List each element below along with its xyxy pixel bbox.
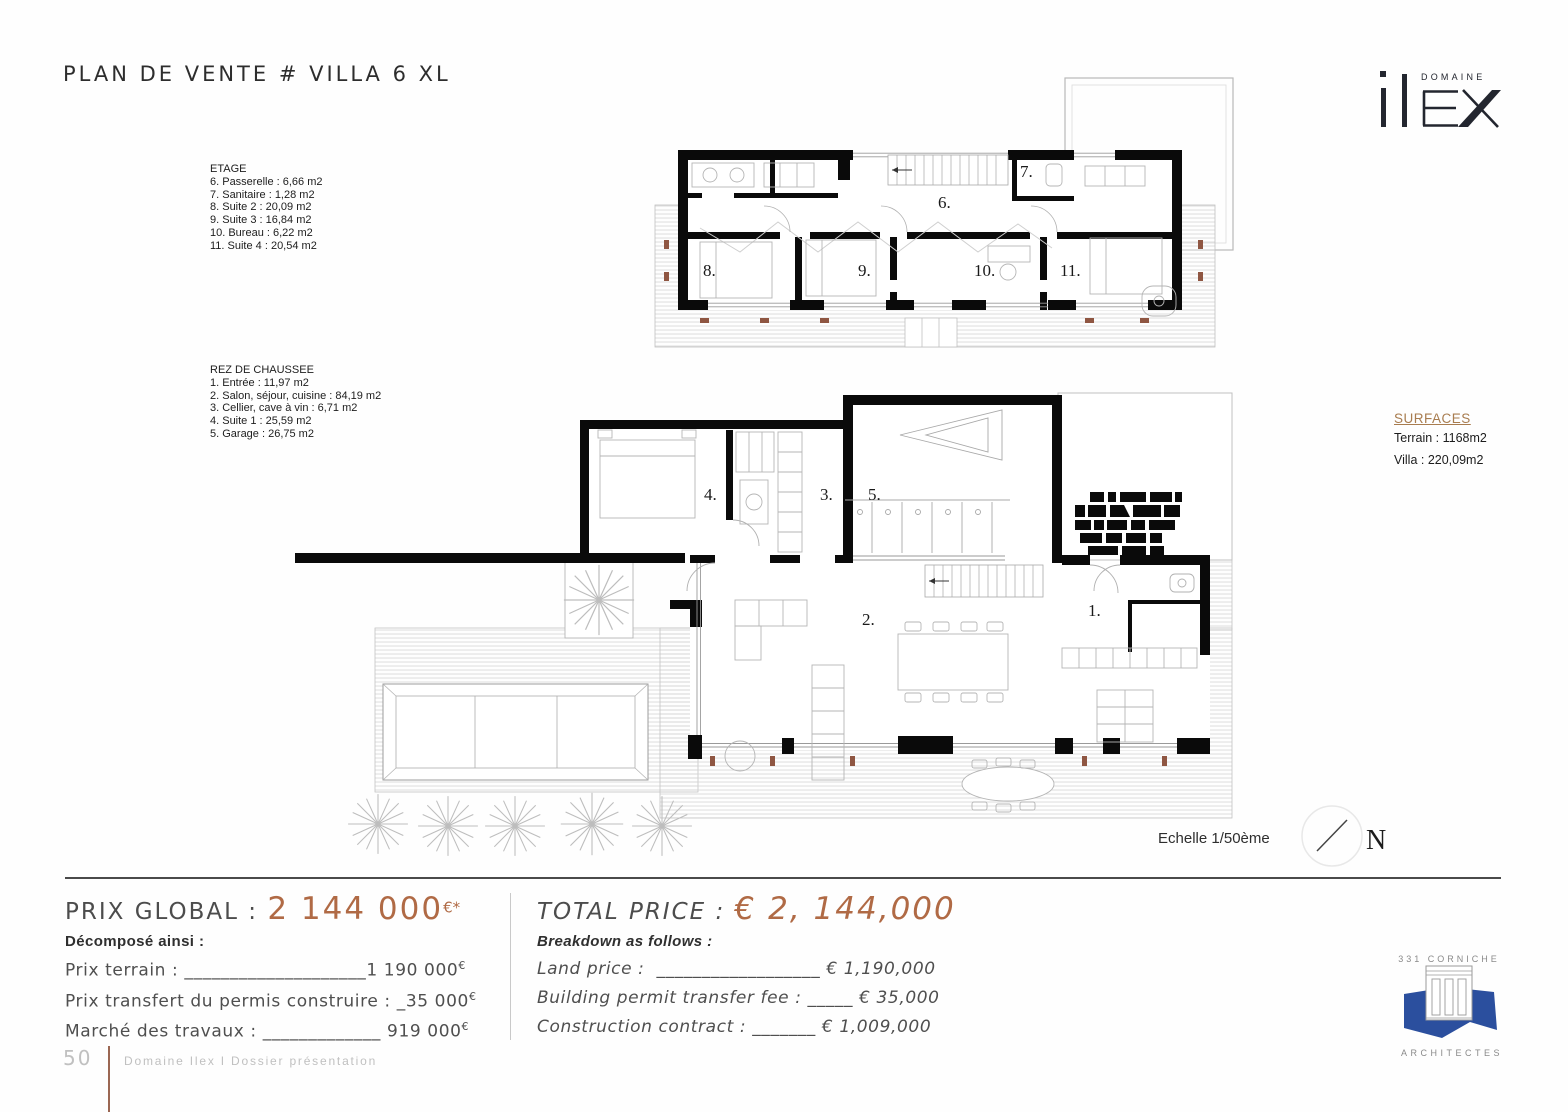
room-label-3: 3. <box>820 485 833 504</box>
surfaces-villa: Villa : 220,09m2 <box>1394 451 1487 470</box>
logo-ex-glyphs <box>1423 90 1498 127</box>
row-value: € 1,190,000 <box>826 959 935 979</box>
row-label: Construction contract : <box>537 1017 752 1037</box>
row-currency: € <box>469 990 477 1003</box>
surfaces-terrain: Terrain : 1168m2 <box>1394 429 1487 448</box>
price-fr-subheading: Décomposé ainsi : <box>65 933 477 950</box>
row-currency: € <box>462 1020 470 1033</box>
domaine-ilex-logo: DOMAINE <box>1380 71 1501 127</box>
room-label-9: 9. <box>858 261 871 280</box>
room-label-4: 4. <box>704 485 717 504</box>
rdc-heading: REZ DE CHAUSSEE <box>210 364 381 377</box>
row-label: Marché des travaux : <box>65 1022 263 1042</box>
row-value: € 35,000 <box>859 988 940 1008</box>
room-label-2: 2. <box>862 610 875 629</box>
list-item: 5. Garage : 26,75 m2 <box>210 428 381 441</box>
etage-heading: ETAGE <box>210 163 323 176</box>
row-value: 919 000 <box>387 1022 462 1042</box>
list-item: 10. Bureau : 6,22 m2 <box>210 227 323 240</box>
upper-floor-plan: 6. 7. 8. 9. 10. 11. <box>655 78 1233 347</box>
architects-building <box>1426 966 1472 1020</box>
room-label-5: 5. <box>868 485 881 504</box>
etage-room-list: ETAGE 6. Passerelle : 6,66 m2 7. Sanitai… <box>210 163 323 253</box>
upper-stairs <box>888 155 1008 185</box>
pool <box>383 684 648 780</box>
row-label: Prix transfert du permis construire : <box>65 991 397 1011</box>
ground-stairs <box>925 565 1043 597</box>
logo-dot <box>1380 71 1386 77</box>
list-item: 11. Suite 4 : 20,54 m2 <box>210 240 323 253</box>
row-currency: € <box>458 959 466 972</box>
north-letter: N <box>1366 825 1386 856</box>
room-label-7: 7. <box>1020 162 1033 181</box>
price-fr-label: PRIX GLOBAL : <box>65 899 267 925</box>
logo-domaine-text: DOMAINE <box>1421 72 1485 82</box>
compass-needle <box>1317 820 1347 851</box>
price-row: Construction contract : _______ € 1,009,… <box>537 1017 956 1037</box>
row-fill: ____________________ <box>184 961 366 981</box>
footer-caption: Domaine Ilex I Dossier présentation <box>124 1054 377 1068</box>
price-fr-amount: 2 144 000 <box>267 891 443 927</box>
price-block-fr: PRIX GLOBAL : 2 144 000€* Décomposé ains… <box>65 891 477 1042</box>
row-fill: _____ <box>808 988 860 1008</box>
architects-logo: 331 CORNICHE ARCHITECTES <box>1398 954 1503 1058</box>
north-compass: N <box>1302 806 1386 866</box>
architects-line1: 331 CORNICHE <box>1398 954 1500 964</box>
row-value: € 1,009,000 <box>822 1017 931 1037</box>
list-item: 7. Sanitaire : 1,28 m2 <box>210 189 323 202</box>
row-label: Land price : <box>537 959 657 979</box>
room-label-11: 11. <box>1060 261 1081 280</box>
row-value: 1 190 000 <box>366 961 458 981</box>
price-fr-currency: €* <box>443 899 460 917</box>
room-label-8: 8. <box>703 261 716 280</box>
sales-plan-page: 6. 7. 8. 9. 10. 11. <box>0 0 1568 1112</box>
surfaces-heading: SURFACES <box>1394 411 1487 426</box>
rdc-room-list: REZ DE CHAUSSEE 1. Entrée : 11,97 m2 2. … <box>210 364 381 441</box>
price-row: Land price : __________________ € 1,190,… <box>537 959 956 979</box>
list-item: 3. Cellier, cave à vin : 6,71 m2 <box>210 402 381 415</box>
architects-line2: ARCHITECTES <box>1401 1048 1503 1058</box>
page-title: PLAN DE VENTE # VILLA 6 XL <box>63 62 451 86</box>
list-item: 4. Suite 1 : 25,59 m2 <box>210 415 381 428</box>
price-row: Marché des travaux : _____________ 919 0… <box>65 1020 477 1042</box>
list-item: 2. Salon, séjour, cuisine : 84,19 m2 <box>210 390 381 403</box>
row-fill: _______ <box>752 1017 822 1037</box>
total-price-line: TOTAL PRICE : € 2, 144,000 <box>537 891 956 927</box>
row-label: Building permit transfer fee : <box>537 988 808 1008</box>
room-label-10: 10. <box>974 261 995 280</box>
price-en-amount: € 2, 144,000 <box>735 891 956 927</box>
row-fill: _____________ <box>263 1022 387 1042</box>
price-row: Prix terrain : ____________________1 190… <box>65 959 477 981</box>
surfaces-panel: SURFACES Terrain : 1168m2 Villa : 220,09… <box>1394 411 1487 470</box>
price-row: Building permit transfer fee : _____ € 3… <box>537 988 956 1008</box>
list-item: 1. Entrée : 11,97 m2 <box>210 377 381 390</box>
row-fill: _ <box>397 991 406 1011</box>
room-label-6: 6. <box>938 193 951 212</box>
room-label-1: 1. <box>1088 601 1101 620</box>
list-item: 9. Suite 3 : 16,84 m2 <box>210 214 323 227</box>
global-price-line: PRIX GLOBAL : 2 144 000€* <box>65 891 477 927</box>
list-item: 6. Passerelle : 6,66 m2 <box>210 176 323 189</box>
page-number: 50 <box>63 1046 92 1070</box>
price-en-label: TOTAL PRICE : <box>537 899 735 925</box>
ground-floor-plan: 4. 3. 5. 2. 1. <box>295 393 1232 856</box>
row-value: 35 000 <box>406 991 469 1011</box>
garden-palms <box>348 793 692 856</box>
row-label: Prix terrain : <box>65 961 184 981</box>
price-en-subheading: Breakdown as follows : <box>537 933 956 950</box>
price-row: Prix transfert du permis construire : _3… <box>65 990 477 1012</box>
price-block-en: TOTAL PRICE : € 2, 144,000 Breakdown as … <box>537 891 956 1037</box>
list-item: 8. Suite 2 : 20,09 m2 <box>210 201 323 214</box>
row-fill: __________________ <box>657 959 827 979</box>
tree-planter <box>564 562 634 638</box>
scale-label: Echelle 1/50ème <box>1158 830 1270 847</box>
